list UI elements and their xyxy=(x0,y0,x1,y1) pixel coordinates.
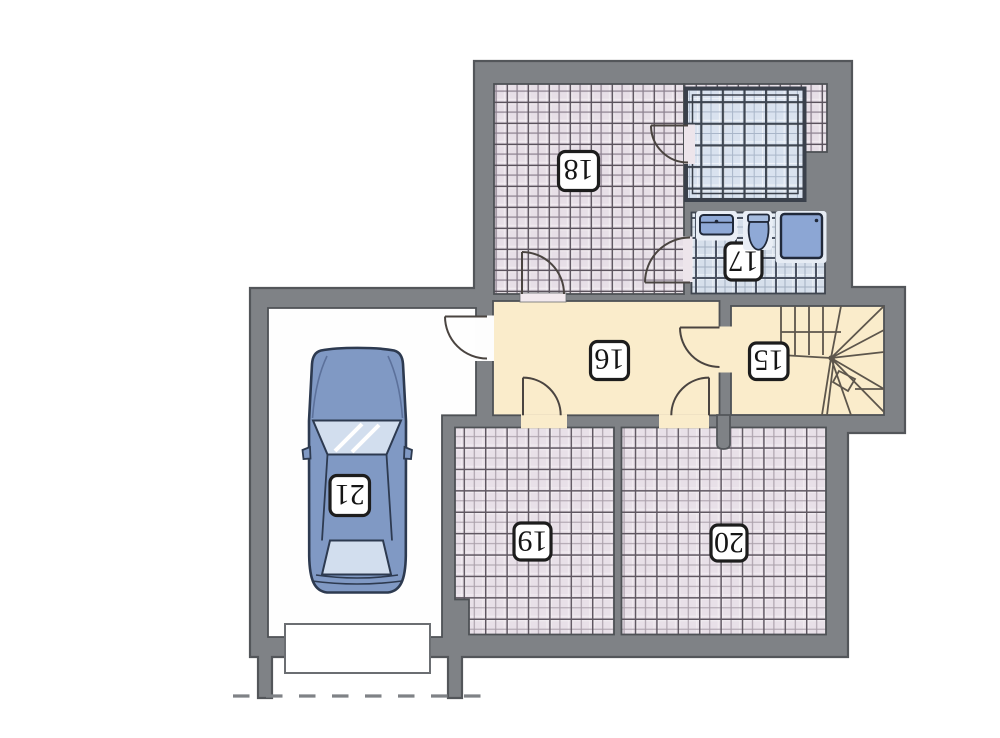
svg-text:18: 18 xyxy=(564,153,594,186)
svg-text:15: 15 xyxy=(754,343,784,376)
svg-text:16: 16 xyxy=(595,343,625,376)
svg-text:20: 20 xyxy=(714,526,744,559)
svg-text:19: 19 xyxy=(518,525,548,558)
svg-text:21: 21 xyxy=(335,478,365,511)
